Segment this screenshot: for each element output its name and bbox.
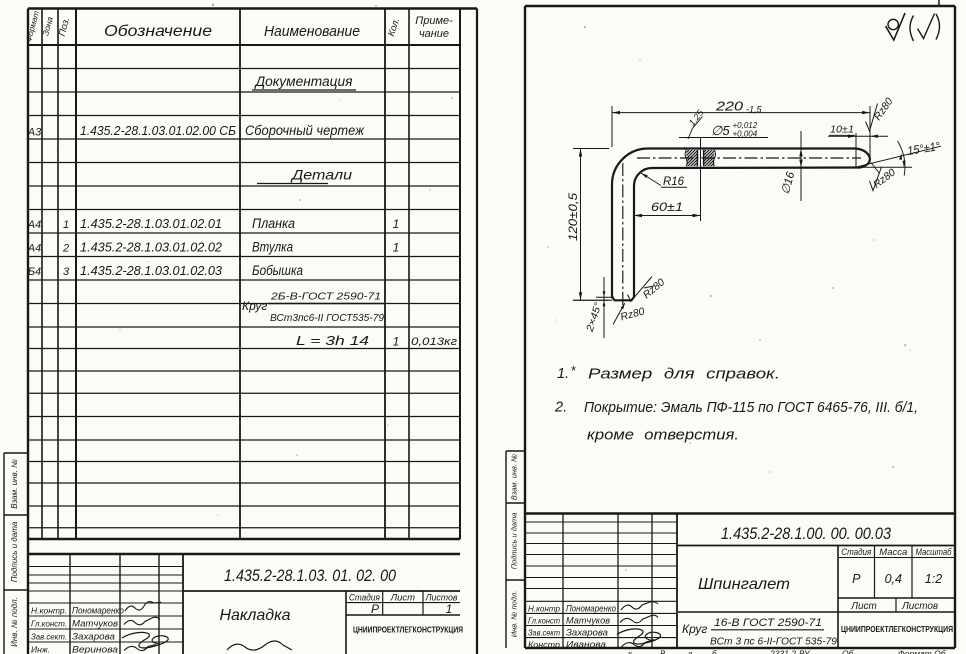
- svg-text:1.: 1.: [557, 366, 569, 382]
- svg-text:А4: А4: [27, 219, 41, 231]
- svg-text:Бобышка: Бобышка: [252, 263, 303, 278]
- svg-text:ЦНИИПРОЕКТЛЕГКОНСТРУКЦИЯ: ЦНИИПРОЕКТЛЕГКОНСТРУКЦИЯ: [841, 625, 953, 634]
- svg-text:Захарова: Захарова: [72, 632, 115, 643]
- svg-text:Инв. № подл.: Инв. № подл.: [10, 597, 19, 647]
- svg-text:Иванова: Иванова: [566, 640, 606, 651]
- svg-text:Н.контр: Н.контр: [528, 604, 560, 614]
- svg-text:Размер для справок.: Размер для справок.: [588, 367, 780, 383]
- svg-text:Обозначение: Обозначение: [104, 23, 212, 40]
- svg-text:1.435.2-28.1.03.01.02.01: 1.435.2-28.1.03.01.02.01: [80, 216, 222, 231]
- svg-text:3: 3: [63, 266, 70, 278]
- svg-text:1:2: 1:2: [925, 572, 942, 586]
- svg-text:0,013кг: 0,013кг: [411, 336, 458, 348]
- svg-text:Втулка: Втулка: [252, 240, 293, 255]
- svg-text:R16: R16: [663, 174, 684, 188]
- svg-text:б: б: [712, 650, 717, 654]
- svg-text:Документация: Документация: [253, 74, 352, 89]
- svg-text:ВСт 3 пс 6-II-ГОСТ 535-79: ВСт 3 пс 6-II-ГОСТ 535-79: [710, 637, 837, 648]
- svg-text:В: В: [660, 650, 666, 654]
- svg-text:-1,5: -1,5: [746, 105, 763, 115]
- svg-text:1: 1: [63, 219, 69, 231]
- svg-text:1.435.2-28.1.03. 01. 02. 00: 1.435.2-28.1.03. 01. 02. 00: [224, 566, 396, 585]
- svg-text:∅16: ∅16: [780, 170, 798, 196]
- svg-text:Подпись и дата: Подпись и дата: [10, 521, 19, 582]
- svg-text:чание: чание: [419, 28, 449, 40]
- svg-text:Кол.: Кол.: [386, 17, 402, 38]
- svg-text:Гл.конст.: Гл.конст.: [31, 619, 67, 629]
- svg-text:15°±1°: 15°±1°: [906, 139, 941, 158]
- svg-text:Лист: Лист: [850, 601, 877, 612]
- svg-text:Гл.конст: Гл.конст: [528, 616, 560, 626]
- svg-text:220: 220: [715, 99, 744, 114]
- svg-text:Масштаб: Масштаб: [916, 547, 953, 558]
- svg-text:2.: 2.: [554, 400, 567, 416]
- svg-text:Матчуков: Матчуков: [72, 619, 118, 630]
- svg-text:Формат: Формат: [24, 10, 41, 43]
- svg-text:Подпись и дата: Подпись и дата: [510, 513, 519, 570]
- svg-text:*: *: [571, 363, 577, 378]
- svg-text:Пономаренко: Пономаренко: [72, 606, 124, 617]
- svg-text:1: 1: [393, 335, 400, 349]
- svg-text:Планка: Планка: [252, 216, 295, 231]
- svg-text:16-В ГОСТ 2590-71: 16-В ГОСТ 2590-71: [714, 617, 822, 629]
- svg-text:кроме отверстия.: кроме отверстия.: [587, 428, 739, 444]
- svg-text:60±1: 60±1: [651, 200, 683, 214]
- svg-text:Приме-: Приме-: [415, 15, 453, 27]
- svg-text:1.435.2-28.1.03.01.02.03: 1.435.2-28.1.03.01.02.03: [80, 263, 223, 278]
- svg-text:Б4: Б4: [28, 266, 41, 278]
- svg-text:Круг: Круг: [242, 299, 267, 313]
- svg-text:2331.2-ВУ: 2331.2-ВУ: [769, 649, 811, 654]
- svg-text:∅5: ∅5: [711, 123, 730, 138]
- svg-text:1.435.2-28.1.03.01.02.02: 1.435.2-28.1.03.01.02.02: [80, 240, 223, 255]
- svg-text:2×45°: 2×45°: [584, 301, 604, 334]
- svg-text:в: в: [688, 650, 692, 654]
- svg-text:0,4: 0,4: [885, 572, 902, 586]
- svg-text:Взам. инв. №: Взам. инв. №: [510, 454, 519, 500]
- svg-text:Формат Об: Формат Об: [898, 649, 947, 654]
- svg-text:+0,004: +0,004: [733, 130, 758, 139]
- svg-text:Листов: Листов: [901, 601, 938, 612]
- svg-text:Круг: Круг: [682, 622, 707, 636]
- svg-text:Констр: Констр: [528, 640, 560, 650]
- svg-text:120±0,5: 120±0,5: [568, 192, 580, 241]
- svg-text:Инж.: Инж.: [31, 645, 50, 654]
- svg-text:Зав.сект: Зав.сект: [528, 628, 560, 638]
- svg-text:10±1: 10±1: [830, 124, 854, 136]
- svg-text:1.435.2-28.1.03.01.02.00 СБ: 1.435.2-28.1.03.01.02.00 СБ: [80, 123, 236, 138]
- svg-text:ЦНИИПРОЕКТЛЕГКОНСТРУКЦИЯ: ЦНИИПРОЕКТЛЕГКОНСТРУКЦИЯ: [353, 626, 463, 635]
- svg-text:Детали: Детали: [290, 168, 353, 183]
- svg-text:Н.контр.: Н.контр.: [31, 606, 67, 616]
- svg-text:Шпингалет: Шпингалет: [698, 576, 790, 593]
- svg-text:Rz80: Rz80: [872, 96, 896, 123]
- svg-text:1: 1: [393, 241, 400, 255]
- svg-text:Покрытие: Эмаль ПФ-115 по ГО: Покрытие: Эмаль ПФ-115 по ГОСТ 6465-76, …: [584, 400, 918, 416]
- svg-text:Р: Р: [852, 572, 861, 586]
- svg-text:А4: А4: [27, 243, 41, 255]
- svg-text:2Б-В-ГОСТ 2590-71: 2Б-В-ГОСТ 2590-71: [270, 291, 381, 303]
- svg-text:L = 3h 14: L = 3h 14: [296, 333, 369, 348]
- svg-text:Поз.: Поз.: [57, 16, 73, 37]
- svg-text:1,25: 1,25: [687, 107, 706, 128]
- svg-text:Стадия: Стадия: [841, 547, 871, 558]
- svg-text:Взам. инв. №: Взам. инв. №: [10, 459, 19, 509]
- svg-text:к: к: [628, 650, 633, 654]
- svg-text:Лист: Лист: [390, 593, 416, 604]
- svg-text:Зав.сект.: Зав.сект.: [31, 632, 67, 642]
- svg-text:1: 1: [393, 217, 400, 231]
- svg-text:1.435.2-28.1.00. 00. 00.03: 1.435.2-28.1.00. 00. 00.03: [721, 525, 892, 543]
- svg-text:Р: Р: [371, 602, 379, 616]
- svg-text:А3: А3: [27, 127, 42, 139]
- svg-text:2: 2: [62, 243, 69, 255]
- svg-text:Матчуков: Матчуков: [566, 616, 610, 627]
- svg-text:Rz80: Rz80: [641, 276, 668, 301]
- svg-text:Веринова: Веринова: [72, 645, 118, 654]
- svg-text:Пономаренко: Пономаренко: [566, 604, 616, 615]
- svg-text:Наименование: Наименование: [264, 23, 360, 40]
- svg-text:Масса: Масса: [879, 547, 907, 558]
- svg-text:Листов: Листов: [425, 593, 458, 604]
- svg-text:Rz80: Rz80: [871, 166, 898, 190]
- svg-text:Захарова: Захарова: [566, 628, 608, 639]
- svg-text:Сборочный чертеж: Сборочный чертеж: [245, 123, 365, 138]
- svg-text:1: 1: [446, 602, 453, 616]
- svg-text:Об: Об: [842, 649, 855, 654]
- svg-text:Накладка: Накладка: [220, 607, 291, 624]
- svg-text:ВСт3пс6-II ГОСТ535-79: ВСт3пс6-II ГОСТ535-79: [270, 312, 384, 324]
- svg-text:Инв. № подл.: Инв. № подл.: [510, 591, 519, 638]
